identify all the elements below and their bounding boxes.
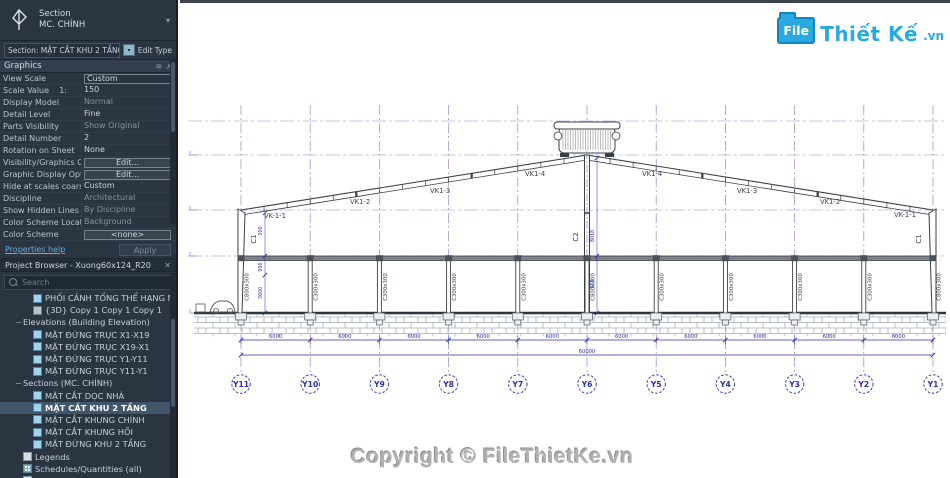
search-placeholder: Search bbox=[22, 278, 49, 287]
property-label: Detail Level bbox=[0, 109, 82, 120]
vertical-dimension: 950 bbox=[590, 279, 596, 288]
tree-item[interactable]: MẶT CẮT KHUNG CHÍNH bbox=[0, 414, 176, 426]
type-text: Section MC. CHÍNH bbox=[39, 9, 159, 31]
level-marker-icon bbox=[190, 206, 198, 210]
property-value[interactable]: Custom bbox=[82, 181, 176, 192]
property-value[interactable]: None bbox=[82, 145, 176, 156]
logo-file-text: File bbox=[783, 23, 809, 38]
property-row: DisciplineArchitectural bbox=[0, 193, 176, 205]
rafter-label[interactable]: VK-1-1 bbox=[264, 212, 286, 220]
property-row: Scale Value 1:150 bbox=[0, 85, 176, 97]
level-marker-icon bbox=[190, 252, 198, 256]
rafter-label[interactable]: VK1-2 bbox=[350, 198, 370, 206]
properties-group-label: Graphics bbox=[4, 61, 42, 71]
vertical-dimension: 950 bbox=[258, 262, 264, 271]
property-row: Color Scheme LocationBackground bbox=[0, 217, 176, 229]
column-label[interactable]: C800x300 bbox=[937, 273, 943, 301]
bay-dimension: 6000 bbox=[407, 334, 420, 340]
property-value[interactable]: Edit... bbox=[82, 169, 176, 180]
view3d-icon bbox=[33, 306, 42, 315]
level-marker-icon bbox=[190, 151, 198, 155]
panel-menu-icon[interactable]: ≋ bbox=[155, 62, 162, 71]
column-label[interactable]: C300x300 bbox=[452, 273, 458, 301]
property-row: Rotation on SheetNone bbox=[0, 145, 176, 157]
foundation-pad bbox=[651, 313, 662, 320]
foundation-pad bbox=[789, 313, 800, 320]
tree-item[interactable]: −Elevations (Building Elevation) bbox=[0, 316, 176, 328]
column-label[interactable]: C800x300 bbox=[245, 273, 251, 301]
search-icon bbox=[9, 278, 17, 286]
search-input[interactable]: Search bbox=[4, 275, 172, 290]
bay-dimension: 6000 bbox=[615, 334, 628, 340]
property-value[interactable]: 150 bbox=[82, 85, 176, 96]
property-row: Graphic Display OptionsEdit... bbox=[0, 169, 176, 181]
view-icon bbox=[33, 330, 42, 339]
tree-item[interactable]: PHỐI CẢNH TỔNG THỂ HẠNG MỤC bbox=[0, 292, 176, 304]
column-label[interactable]: C300x300 bbox=[521, 273, 527, 301]
tree-item-label: MẶT ĐỨNG TRỤC Y11-Y1 bbox=[45, 366, 148, 376]
bay-dimension: 6000 bbox=[823, 334, 836, 340]
property-label: Display Model bbox=[0, 97, 82, 108]
app-window: Section MC. CHÍNH ▾ Section: MẶT CẮT KHU… bbox=[0, 0, 950, 478]
tree-item[interactable]: {3D} Copy 1 Copy 1 Copy 1 bbox=[0, 304, 176, 316]
tree-item[interactable]: MẶT CẮT KHU 2 TẦNG bbox=[0, 402, 176, 414]
tree-item[interactable]: −Sections (MC. CHÍNH) bbox=[0, 377, 176, 389]
section-marker-icon bbox=[6, 7, 32, 33]
properties-panel: Section MC. CHÍNH ▾ Section: MẶT CẮT KHU… bbox=[0, 0, 178, 478]
view-icon bbox=[33, 440, 42, 449]
bay-dimension: 6000 bbox=[753, 334, 766, 340]
property-row: Color Scheme<none> bbox=[0, 229, 176, 241]
tree-item[interactable]: Schedules/Quantities (all) bbox=[0, 463, 176, 475]
collapse-icon[interactable]: − bbox=[14, 379, 23, 388]
project-browser-titlebar: Project Browser - Xuong60x124_R20 ✕ bbox=[0, 258, 176, 272]
property-label: Visibility/Graphics Ov... bbox=[0, 157, 82, 168]
property-row: Display ModelNormal bbox=[0, 97, 176, 109]
grid-bubble-label[interactable]: Y5 bbox=[650, 380, 662, 389]
copyright-watermark: Copyright © FileThietKe.vn bbox=[292, 445, 692, 469]
view-icon bbox=[33, 391, 42, 400]
view-icon bbox=[33, 403, 42, 412]
property-label: Detail Number bbox=[0, 133, 82, 144]
apply-button[interactable]: Apply bbox=[119, 244, 171, 256]
section-select-value: Section: MẶT CẮT KHU 2 TẦNG bbox=[8, 46, 120, 55]
tree-item[interactable]: MẶT ĐỨNG TRỤC Y11-Y1 bbox=[0, 365, 176, 377]
drawing-canvas[interactable]: 6000600060006000600060006000600060006000… bbox=[180, 0, 950, 478]
tree-item-label: MẶT ĐỨNG KHU 2 TẦNG bbox=[45, 439, 146, 449]
property-value[interactable]: <none> bbox=[82, 229, 176, 240]
tree-item[interactable]: MẶT ĐỨNG TRỤC X1-X19 bbox=[0, 329, 176, 341]
rafter-label[interactable]: VK1-2 bbox=[820, 198, 840, 206]
property-label: Show Hidden Lines bbox=[0, 205, 82, 216]
property-value[interactable]: Architectural bbox=[82, 193, 176, 204]
grid-bubble-label[interactable]: Y7 bbox=[511, 380, 523, 389]
property-value[interactable]: Fine bbox=[82, 109, 176, 120]
tree-item-label: Sections (MC. CHÍNH) bbox=[23, 378, 112, 388]
column-label[interactable]: C300x300 bbox=[798, 273, 804, 301]
close-icon[interactable]: ✕ bbox=[164, 261, 171, 270]
grid-bubble-label[interactable]: Y11 bbox=[232, 380, 249, 389]
bay-dimension: 6000 bbox=[477, 334, 490, 340]
logo-tld: .vn bbox=[923, 29, 944, 44]
type-category: Section bbox=[39, 9, 159, 20]
schedule-icon bbox=[23, 464, 32, 473]
foundation-pad bbox=[928, 313, 939, 320]
property-row: View ScaleCustom bbox=[0, 73, 176, 85]
properties-footer: Properties help Apply bbox=[0, 241, 176, 258]
grid-bubble-label[interactable]: Y1 bbox=[927, 380, 939, 389]
view-icon bbox=[33, 342, 42, 351]
property-value[interactable]: Background bbox=[82, 217, 176, 228]
properties-group-header[interactable]: Graphics ≋ ∧ bbox=[0, 60, 176, 73]
properties-scrollbar[interactable] bbox=[170, 58, 176, 224]
section-drawing[interactable]: 6000600060006000600060006000600060006000… bbox=[180, 3, 950, 478]
bay-dimension: 6000 bbox=[269, 334, 282, 340]
tree-item[interactable]: MẶT ĐỨNG KHU 2 TẦNG bbox=[0, 438, 176, 450]
section-select[interactable]: Section: MẶT CẮT KHU 2 TẦNG ▾ bbox=[4, 43, 120, 58]
vertical-dimension: 3600 bbox=[258, 287, 264, 299]
column-label[interactable]: C300x300 bbox=[314, 273, 320, 301]
bay-dimension: 6000 bbox=[684, 334, 697, 340]
grid-bubbles: Y11Y10Y9Y8Y7Y6Y5Y4Y3Y2Y1 bbox=[232, 375, 942, 393]
property-row: Parts VisibilityShow Original bbox=[0, 121, 176, 133]
project-browser-title: Project Browser - Xuong60x124_R20 bbox=[5, 261, 151, 270]
property-value[interactable]: Edit... bbox=[82, 157, 176, 168]
foundation-pad bbox=[512, 313, 523, 320]
logo-name: Thiết Kế bbox=[820, 24, 918, 44]
rafter-label[interactable]: VK-1-1 bbox=[894, 211, 916, 219]
corner-column-label[interactable]: C1 bbox=[250, 234, 258, 243]
column-label[interactable]: C300x300 bbox=[383, 273, 389, 301]
dimension-line-total: 60000 bbox=[239, 349, 935, 357]
view-icon bbox=[33, 294, 42, 303]
properties-rows: View ScaleCustomScale Value 1:150Display… bbox=[0, 73, 176, 241]
grid-bubble-label[interactable]: Y3 bbox=[788, 380, 800, 389]
tree-item-label: PHỐI CẢNH TỔNG THỂ HẠNG MỤC bbox=[45, 293, 176, 303]
property-label: Graphic Display Options bbox=[0, 169, 82, 180]
foundation-pad bbox=[305, 313, 316, 320]
tree-scrollbar[interactable] bbox=[170, 273, 176, 478]
property-label: View Scale bbox=[0, 73, 82, 84]
tree-item[interactable]: Legends bbox=[0, 450, 176, 462]
property-label: Color Scheme bbox=[0, 229, 82, 240]
tree-item-label: {3D} Copy 1 Copy 1 Copy 1 bbox=[45, 305, 162, 315]
tree-item-label: Legends bbox=[35, 452, 70, 462]
tree-item-label: MẶT CẮT DỌC NHÀ bbox=[45, 391, 124, 401]
property-label: Rotation on Sheet bbox=[0, 145, 82, 156]
center-column-label[interactable]: C2 bbox=[572, 232, 580, 241]
tree-item-label: MẶT ĐỨNG TRỤC Y1-Y11 bbox=[45, 354, 148, 364]
foundation-pad bbox=[443, 313, 454, 320]
property-row: Detail LevelFine bbox=[0, 109, 176, 121]
filethietke-logo: File Thiết Kế .vn bbox=[777, 11, 944, 44]
view-icon bbox=[33, 428, 42, 437]
foundation-pad bbox=[374, 313, 385, 320]
property-value[interactable]: Show Original bbox=[82, 121, 176, 132]
property-label: Color Scheme Location bbox=[0, 217, 82, 228]
tree-item-label: MẶT CẮT KHUNG HỒI bbox=[45, 427, 133, 437]
tree-item-label: Elevations (Building Elevation) bbox=[23, 317, 150, 327]
tree-item[interactable]: MẶT CẮT DỌC NHÀ bbox=[0, 390, 176, 402]
bay-dimension: 6000 bbox=[892, 334, 905, 340]
property-row: Visibility/Graphics Ov...Edit... bbox=[0, 157, 176, 169]
properties-help-link[interactable]: Properties help bbox=[5, 245, 65, 254]
legend-icon bbox=[23, 452, 32, 461]
bay-dimension: 6000 bbox=[338, 334, 351, 340]
property-label: Hide at scales coarser ... bbox=[0, 181, 82, 192]
property-row: Hide at scales coarser ...Custom bbox=[0, 181, 176, 193]
total-dimension: 60000 bbox=[579, 349, 596, 355]
rafter-label[interactable]: VK1-3 bbox=[737, 187, 757, 195]
property-row: Detail Number2 bbox=[0, 133, 176, 145]
folder-icon: File bbox=[777, 17, 815, 44]
edit-type-icon bbox=[124, 45, 134, 55]
edit-type-button[interactable]: Edit Type bbox=[138, 46, 172, 55]
vertical-dimension: 300 bbox=[258, 226, 264, 235]
property-label: Discipline bbox=[0, 193, 82, 204]
bay-dimension: 6000 bbox=[546, 334, 559, 340]
column-label[interactable]: C300x300 bbox=[729, 273, 735, 301]
view-icon bbox=[33, 415, 42, 424]
view-icon bbox=[33, 355, 42, 364]
grid-bubble-label[interactable]: Y4 bbox=[719, 380, 731, 389]
project-browser-tree: PHỐI CẢNH TỔNG THỂ HẠNG MỤC{3D} Copy 1 C… bbox=[0, 292, 176, 478]
property-label: Parts Visibility bbox=[0, 121, 82, 132]
section-bar: Section: MẶT CẮT KHU 2 TẦNG ▾ Edit Type bbox=[0, 41, 176, 60]
collapse-icon[interactable]: − bbox=[14, 318, 23, 327]
property-value[interactable]: 2 bbox=[82, 133, 176, 144]
tree-item-label: MẶT CẮT KHU 2 TẦNG bbox=[45, 403, 147, 413]
search-row: Search bbox=[0, 272, 176, 292]
tree-item[interactable]: MẶT ĐỨNG TRỤC X19-X1 bbox=[0, 341, 176, 353]
grid-bubble-label[interactable]: Y8 bbox=[442, 380, 454, 389]
tree-item-label: MẶT ĐỨNG TRỤC X1-X19 bbox=[45, 330, 149, 340]
grid-bubble-label[interactable]: Y9 bbox=[373, 380, 385, 389]
property-value[interactable]: Normal bbox=[82, 97, 176, 108]
tree-item-label: Schedules/Quantities (all) bbox=[35, 464, 142, 474]
foundation-pad bbox=[720, 313, 731, 320]
grid-bubble-label[interactable]: Y2 bbox=[857, 380, 869, 389]
vehicle bbox=[196, 301, 235, 314]
tree-item[interactable]: MẶT ĐỨNG TRỤC Y1-Y11 bbox=[0, 353, 176, 365]
property-value[interactable]: By Discipline bbox=[82, 205, 176, 216]
grid-bubble-label[interactable]: Y10 bbox=[301, 380, 318, 389]
foundation-pad bbox=[236, 313, 247, 320]
rafter-label[interactable]: VK1-4 bbox=[642, 170, 662, 178]
column-label[interactable]: C300x300 bbox=[660, 273, 666, 301]
type-selector[interactable]: Section MC. CHÍNH ▾ bbox=[0, 0, 176, 41]
type-name: MC. CHÍNH bbox=[39, 20, 159, 31]
rafter-label[interactable]: VK1-3 bbox=[430, 187, 450, 195]
rafter-label[interactable]: VK1-4 bbox=[525, 170, 545, 178]
corner-column-label[interactable]: C1 bbox=[915, 234, 923, 243]
property-label: Scale Value 1: bbox=[0, 85, 82, 96]
tree-item[interactable]: MẶT CẮT KHUNG HỒI bbox=[0, 426, 176, 438]
tree-item-label: MẶT CẮT KHUNG CHÍNH bbox=[45, 415, 145, 425]
property-row: Show Hidden LinesBy Discipline bbox=[0, 205, 176, 217]
foundation-pad bbox=[582, 313, 593, 320]
column-label[interactable]: C300x300 bbox=[867, 273, 873, 301]
property-value[interactable]: Custom bbox=[82, 73, 176, 84]
tree-item-label: MẶT ĐỨNG TRỤC X19-X1 bbox=[45, 342, 149, 352]
chevron-down-icon[interactable]: ▾ bbox=[166, 16, 170, 25]
vertical-dimension: 8018 bbox=[590, 230, 596, 242]
foundation-pad bbox=[858, 313, 869, 320]
grid-bubble-label[interactable]: Y6 bbox=[581, 380, 593, 389]
view-icon bbox=[33, 367, 42, 376]
